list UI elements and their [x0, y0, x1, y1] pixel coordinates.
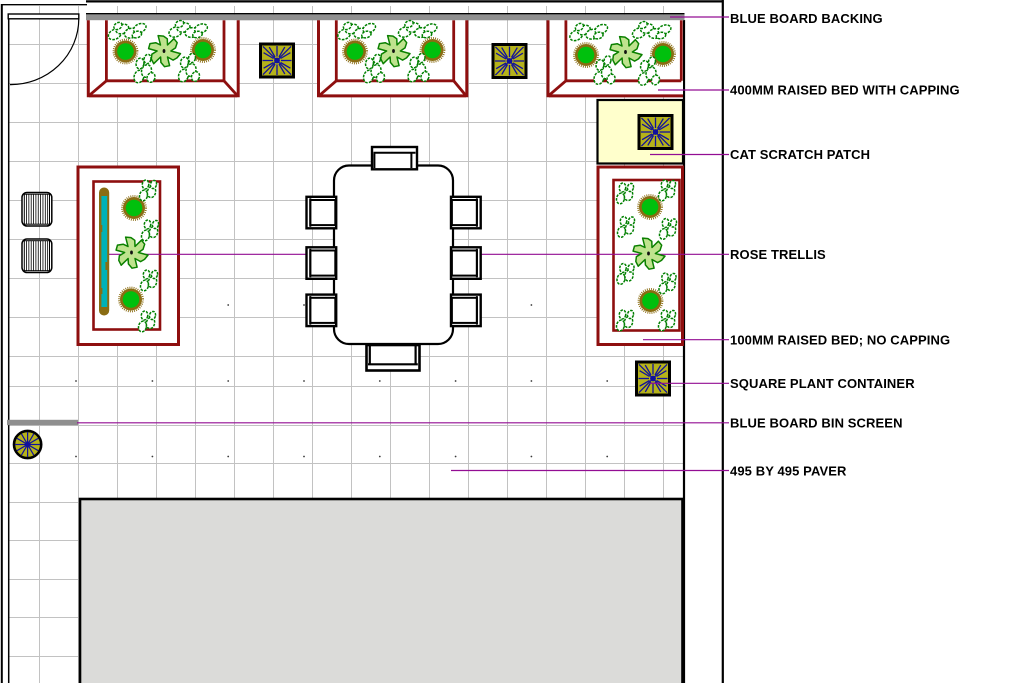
svg-text:100MM RAISED BED; NO CAPPING: 100MM RAISED BED; NO CAPPING — [730, 332, 950, 347]
svg-text:SQUARE PLANT CONTAINER: SQUARE PLANT CONTAINER — [730, 376, 915, 391]
svg-text:BLUE BOARD BIN SCREEN: BLUE BOARD BIN SCREEN — [730, 416, 903, 431]
svg-text:ROSE TRELLIS: ROSE TRELLIS — [730, 247, 826, 262]
svg-text:CAT SCRATCH PATCH: CAT SCRATCH PATCH — [730, 147, 870, 162]
svg-text:BLUE BOARD BACKING: BLUE BOARD BACKING — [730, 11, 883, 26]
svg-text:400MM RAISED BED WITH CAPPING: 400MM RAISED BED WITH CAPPING — [730, 83, 960, 98]
svg-text:495 BY 495 PAVER: 495 BY 495 PAVER — [730, 464, 847, 479]
